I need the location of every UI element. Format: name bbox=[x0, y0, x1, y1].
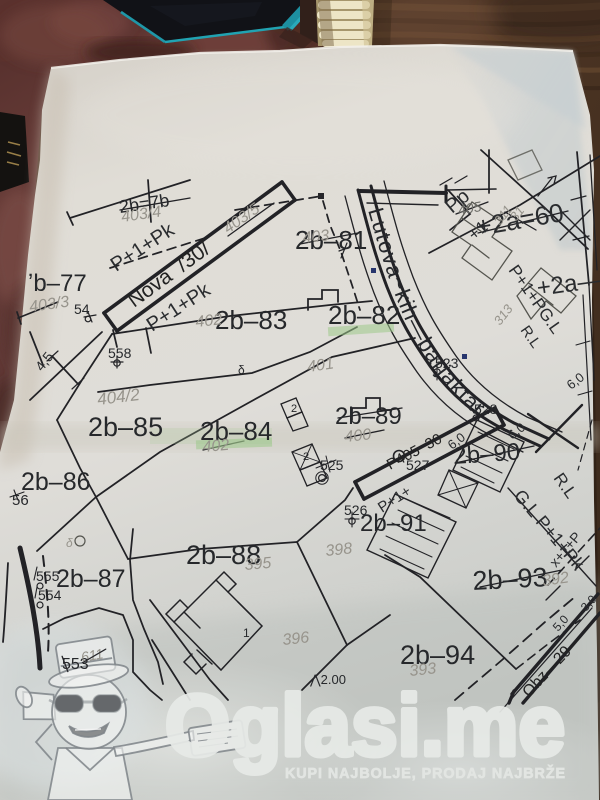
svg-text:2b–83: 2b–83 bbox=[215, 305, 287, 335]
svg-text:525: 525 bbox=[320, 457, 344, 473]
svg-text:2: 2 bbox=[291, 403, 297, 415]
svg-text:400: 400 bbox=[344, 426, 372, 446]
svg-text:403: 403 bbox=[302, 227, 330, 247]
svg-text:Oglasi.me: Oglasi.me bbox=[165, 678, 565, 774]
svg-text:56: 56 bbox=[12, 492, 29, 509]
svg-text:1: 1 bbox=[243, 626, 250, 640]
svg-text:2: 2 bbox=[303, 451, 309, 463]
svg-text:2b–87: 2b–87 bbox=[56, 565, 126, 593]
svg-text:554: 554 bbox=[38, 587, 62, 603]
svg-text:528: 528 bbox=[474, 401, 498, 417]
svg-text:2b–82: 2b–82 bbox=[328, 300, 400, 330]
svg-text:2b–93: 2b–93 bbox=[472, 562, 549, 596]
svg-text:54: 54 bbox=[74, 301, 90, 317]
svg-text:555: 555 bbox=[36, 568, 60, 584]
svg-text:2b–91: 2b–91 bbox=[360, 510, 427, 537]
svg-text:523: 523 bbox=[435, 355, 459, 371]
svg-text:2b–85: 2b–85 bbox=[88, 412, 163, 442]
svg-text:526: 526 bbox=[344, 502, 368, 518]
svg-text:ʼb–77: ʼb–77 bbox=[28, 270, 87, 297]
svg-text:402: 402 bbox=[202, 437, 230, 456]
svg-text:395: 395 bbox=[244, 555, 272, 574]
svg-text:2b–86: 2b–86 bbox=[21, 468, 91, 496]
svg-text:558: 558 bbox=[108, 345, 132, 361]
svg-text:402: 402 bbox=[195, 311, 223, 331]
svg-text:527: 527 bbox=[406, 457, 430, 473]
svg-text:KUPI NAJBOLJE, PRODAJ NAJBRŽE: KUPI NAJBOLJE, PRODAJ NAJBRŽE bbox=[285, 764, 566, 782]
svg-text:398: 398 bbox=[325, 540, 353, 560]
svg-text:δ: δ bbox=[66, 536, 73, 550]
svg-text:396: 396 bbox=[282, 629, 310, 649]
svg-text:δ: δ bbox=[238, 363, 245, 377]
